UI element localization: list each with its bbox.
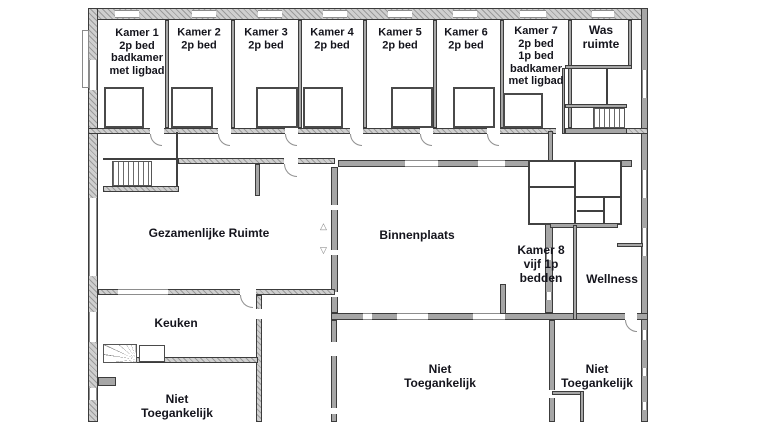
wall [103,158,178,160]
wall [573,225,577,320]
wall [565,128,627,134]
wall [88,8,648,20]
door-arc-icon [625,320,637,332]
door-opening [256,309,262,319]
wall [548,131,553,162]
wall [298,20,302,128]
wall [528,186,574,188]
window [323,10,347,18]
door-opening [331,205,338,210]
room-label-niet-toegankelijk-links: Niet Toegankelijk [141,392,213,420]
room-label-wellness: Wellness [586,272,638,286]
window [89,312,97,342]
wall [574,160,576,225]
window [642,228,647,256]
wall [568,20,572,128]
window [642,70,647,98]
room-label-was-ruimte: Was ruimte [583,23,620,51]
door-arc-icon [420,134,432,146]
door-swing-icon: △ [320,222,327,231]
door-arc-icon [350,134,362,146]
floor-plan: △ ▽ Kamer 1 2p bed badkamer met ligbad K… [0,0,768,422]
staircase [593,108,625,128]
wall [603,196,605,225]
window [89,198,97,276]
door-arc-icon [240,295,253,308]
room-label-niet-toegankelijk-rechts: Niet Toegankelijk [561,362,633,390]
wall [606,68,608,107]
window [192,10,216,18]
door-swing-icon: ▽ [320,246,327,255]
wall [628,20,632,68]
room-label-kamer-7: Kamer 7 2p bed 1p bed badkamer met ligba… [508,25,563,88]
window [478,160,505,167]
window [258,10,282,18]
window [642,170,647,198]
door-arc-icon [487,134,499,146]
window [473,313,505,320]
window [115,10,139,18]
wall [550,223,618,228]
door-arc-icon [150,134,162,146]
wall [103,186,179,192]
bathroom-unit [391,87,433,128]
bathroom-unit [256,87,298,128]
room-label-keuken: Keuken [154,316,197,330]
wall [576,196,622,198]
bathroom-unit [171,87,213,128]
room-label-kamer-4: Kamer 4 2p bed [310,27,353,52]
room-label-binnenplaats: Binnenplaats [379,228,454,242]
wall [231,20,235,128]
wall [331,320,337,422]
door-opening [625,313,637,320]
window [118,289,168,295]
wall [363,20,367,128]
bathroom-unit [503,93,543,128]
wall [433,20,437,128]
room-label-kamer-1: Kamer 1 2p bed badkamer met ligbad [109,27,164,77]
room-label-gezamenlijke-ruimte: Gezamenlijke Ruimte [149,226,270,240]
window [89,388,97,400]
room-label-niet-toegankelijk-midden: Niet Toegankelijk [404,362,476,390]
window [520,10,546,18]
window [642,402,647,410]
window [89,60,97,90]
wall [549,320,555,422]
bathroom-unit [453,87,495,128]
wall [577,210,603,212]
bathroom-unit [104,87,144,128]
window [405,160,438,167]
wall [255,164,260,196]
door-opening [331,408,337,414]
window [363,313,372,320]
wall [617,243,643,247]
window [592,10,614,18]
wall [98,377,116,386]
wall [500,284,506,314]
window [546,292,552,300]
wall [165,20,169,128]
window [397,313,428,320]
bathroom-unit [303,87,343,128]
room-label-kamer-6: Kamer 6 2p bed [444,27,487,52]
stair-landing [139,345,165,362]
window [642,368,647,376]
window [453,10,477,18]
door-arc-icon [285,134,297,146]
staircase [112,161,152,186]
wall [565,65,632,69]
room-label-kamer-8: Kamer 8 vijf 1p bedden [517,243,564,285]
door-opening [331,342,337,356]
room-label-kamer-3: Kamer 3 2p bed [244,27,287,52]
room-label-kamer-5: Kamer 5 2p bed [378,27,421,52]
balcony-outline [82,30,89,88]
door-opening [331,250,338,255]
window [388,10,412,18]
door-arc-icon [218,134,230,146]
door-arc-icon [284,164,297,177]
room-label-kamer-2: Kamer 2 2p bed [177,27,220,52]
wall [580,391,584,422]
spiral-staircase [103,344,137,363]
window [642,330,647,340]
